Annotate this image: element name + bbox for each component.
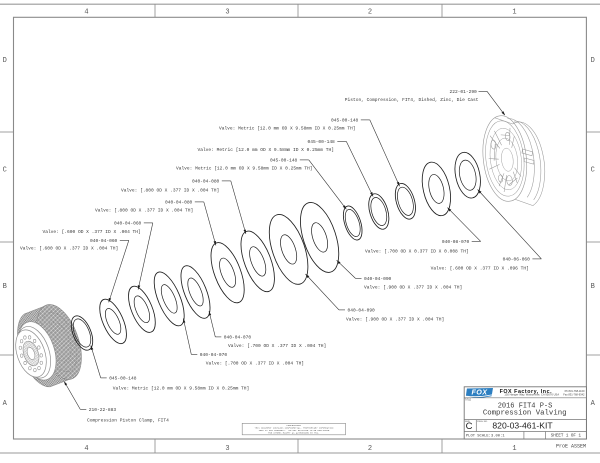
- svg-text:040-04-080: 040-04-080: [165, 200, 193, 206]
- svg-text:040-08-070: 040-08-070: [442, 239, 470, 245]
- svg-text:Valve: Metric [12.0 mm OD X 9.: Valve: Metric [12.0 mm OD X 9.58mm ID X …: [113, 386, 249, 392]
- svg-text:ProE ASSEM: ProE ASSEM: [556, 443, 586, 449]
- svg-text:2: 2: [368, 445, 372, 453]
- svg-text:Fax 831-768-9342: Fax 831-768-9342: [563, 392, 585, 396]
- svg-text:Valve: [.600 OD X .377 ID X .0: Valve: [.600 OD X .377 ID X .004 TH]: [20, 246, 118, 252]
- svg-text:FOR OTHERS EXCEPT AS AUTHORIZE: FOR OTHERS EXCEPT AS AUTHORIZED BY FOX.: [268, 431, 319, 434]
- svg-text:Valve: Metric [12.0 mm OD X 9.: Valve: Metric [12.0 mm OD X 9.58mm ID X …: [198, 147, 334, 153]
- svg-text:2: 2: [368, 8, 372, 16]
- svg-text:DWG. NO.: DWG. NO.: [477, 421, 488, 423]
- svg-text:Valve: [.700 OD X 0.377 ID X 0: Valve: [.700 OD X 0.377 ID X 0.008 TH]: [365, 248, 469, 254]
- svg-text:040-04-090: 040-04-090: [348, 308, 376, 314]
- svg-text:Valve: [.700 OD X .377 ID X .0: Valve: [.700 OD X .377 ID X .004 TH]: [206, 361, 304, 367]
- svg-text:B: B: [3, 283, 7, 291]
- svg-text:Valve: Metric [12.0 mm OD X 9.: Valve: Metric [12.0 mm OD X 9.58mm ID X …: [219, 126, 355, 132]
- svg-text:040-06-060: 040-06-060: [503, 257, 531, 263]
- svg-text:040-04-090: 040-04-090: [364, 276, 392, 282]
- svg-text:Ph 831-768-1100: Ph 831-768-1100: [565, 389, 585, 393]
- svg-text:040-04-060: 040-04-060: [90, 238, 118, 244]
- svg-text:3: 3: [225, 8, 229, 16]
- svg-text:Compression Piston Clamp, FIT4: Compression Piston Clamp, FIT4: [87, 418, 169, 424]
- svg-text:Valve: [.700 OD X .377 ID X .0: Valve: [.700 OD X .377 ID X .004 TH]: [228, 343, 326, 349]
- svg-text:D: D: [591, 57, 595, 65]
- svg-text:045-00-148: 045-00-148: [270, 158, 298, 164]
- svg-text:C: C: [466, 421, 473, 432]
- svg-text:045-00-148: 045-00-148: [109, 376, 137, 382]
- svg-text:040-04-070: 040-04-070: [224, 335, 252, 341]
- svg-text:Valve: [.900 OD X .377 ID X .0: Valve: [.900 OD X .377 ID X .004 TH]: [346, 317, 444, 323]
- svg-text:1: 1: [512, 8, 516, 16]
- svg-text:Piston, Compression, FIT4, Dis: Piston, Compression, FIT4, Dished, Zinc,…: [345, 97, 479, 103]
- svg-text:Compression Valving: Compression Valving: [483, 410, 567, 418]
- svg-text:045-00-148: 045-00-148: [331, 118, 359, 124]
- svg-text:PLOT SCALE:3.00:1: PLOT SCALE:3.00:1: [466, 435, 505, 439]
- svg-text:820-03-461-KIT: 820-03-461-KIT: [492, 420, 553, 430]
- svg-text:130 Hanger Way, Watsonville, C: 130 Hanger Way, Watsonville, CA 95076 US…: [504, 393, 559, 397]
- svg-text:Valve: [.900 OD X .377 ID X .0: Valve: [.900 OD X .377 ID X .004 TH]: [364, 285, 462, 291]
- svg-text:Valve: [.800 OD X .377 ID X .0: Valve: [.800 OD X .377 ID X .004 TH]: [121, 188, 219, 194]
- svg-text:4: 4: [84, 445, 88, 453]
- svg-text:1: 1: [512, 445, 516, 453]
- svg-text:Valve: [.600 OD X .377 ID X .0: Valve: [.600 OD X .377 ID X .096 TH]: [431, 266, 529, 272]
- svg-text:040-04-080: 040-04-080: [192, 179, 220, 185]
- svg-text:3: 3: [225, 445, 229, 453]
- svg-text:B: B: [591, 283, 595, 291]
- svg-text:4: 4: [84, 8, 88, 16]
- svg-text:C: C: [3, 167, 7, 175]
- svg-text:C: C: [591, 167, 595, 175]
- svg-text:SHEET 1 OF 1: SHEET 1 OF 1: [551, 435, 582, 439]
- svg-text:040-04-070: 040-04-070: [200, 352, 228, 358]
- svg-text:222-01-290: 222-01-290: [450, 89, 478, 95]
- svg-text:Valve: [.600 OD X .377 ID X .0: Valve: [.600 OD X .377 ID X .004 TH]: [43, 229, 141, 235]
- svg-text:045-00-148: 045-00-148: [308, 139, 336, 145]
- svg-text:040-04-060: 040-04-060: [114, 221, 142, 227]
- svg-text:TITLE: TITLE: [465, 400, 472, 402]
- svg-text:FOX: FOX: [472, 387, 489, 396]
- svg-text:D: D: [3, 57, 7, 65]
- svg-text:210-22-883: 210-22-883: [89, 407, 117, 413]
- svg-text:Valve: Metric [12.0 mm OD X 9.: Valve: Metric [12.0 mm OD X 9.58mm ID X …: [176, 166, 312, 172]
- svg-text:Valve: [.800 OD X .377 ID X .0: Valve: [.800 OD X .377 ID X .004 TH]: [95, 208, 193, 214]
